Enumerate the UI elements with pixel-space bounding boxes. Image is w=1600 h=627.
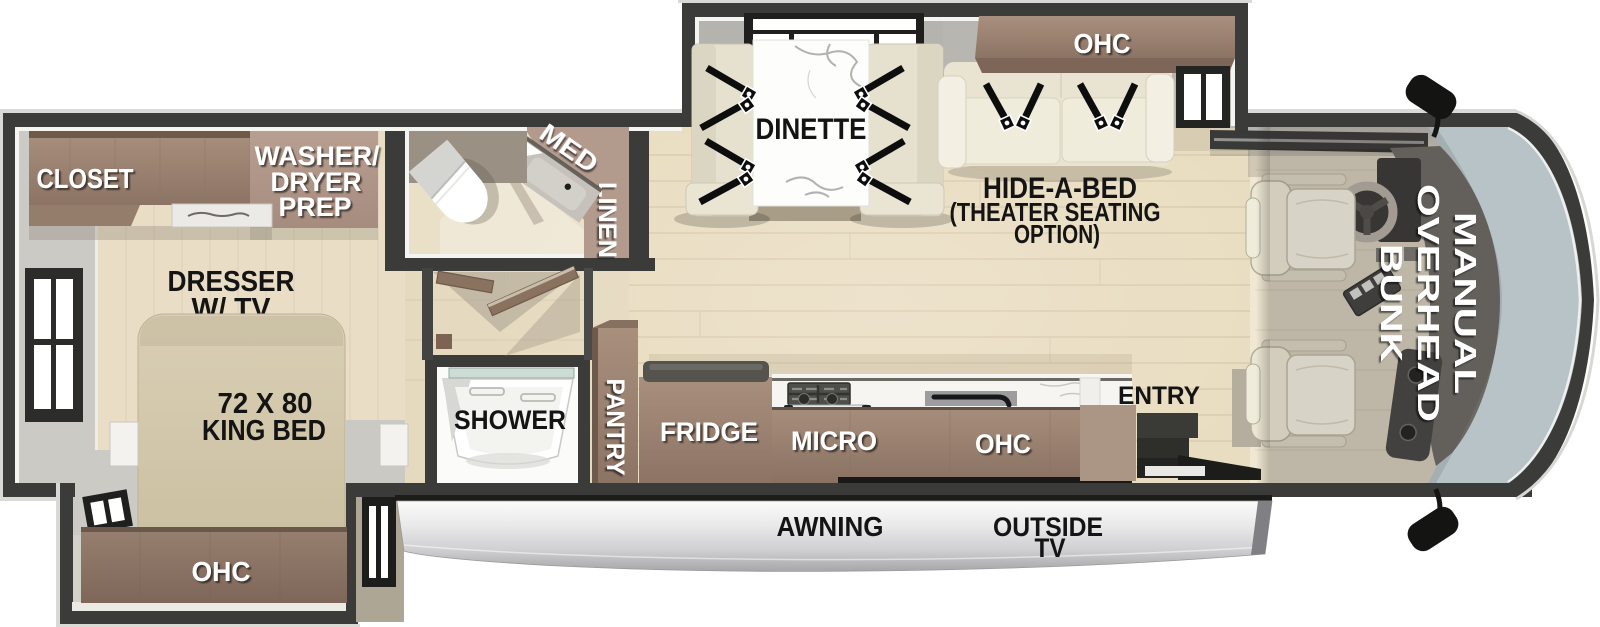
svg-text:CLOSET: CLOSET bbox=[37, 163, 134, 194]
svg-text:OVERHEAD: OVERHEAD bbox=[1411, 184, 1446, 422]
svg-text:PREP: PREP bbox=[279, 192, 352, 222]
svg-text:PANTRY: PANTRY bbox=[601, 379, 629, 476]
svg-text:MICRO: MICRO bbox=[791, 426, 877, 456]
svg-text:OHC: OHC bbox=[975, 429, 1031, 459]
svg-text:DINETTE: DINETTE bbox=[756, 113, 867, 146]
svg-text:FRIDGE: FRIDGE bbox=[660, 417, 758, 447]
svg-text:ENTRY: ENTRY bbox=[1118, 382, 1200, 410]
svg-text:OHC: OHC bbox=[1074, 28, 1131, 59]
svg-text:OHC: OHC bbox=[192, 556, 251, 587]
svg-text:AWNING: AWNING bbox=[777, 511, 884, 542]
svg-text:MANUAL: MANUAL bbox=[1448, 212, 1483, 394]
svg-text:TV: TV bbox=[1035, 533, 1066, 563]
svg-text:BUNK: BUNK bbox=[1374, 244, 1409, 363]
svg-text:SHOWER: SHOWER bbox=[454, 405, 566, 435]
svg-text:OPTION): OPTION) bbox=[1014, 219, 1100, 249]
svg-text:KING BED: KING BED bbox=[202, 415, 326, 447]
